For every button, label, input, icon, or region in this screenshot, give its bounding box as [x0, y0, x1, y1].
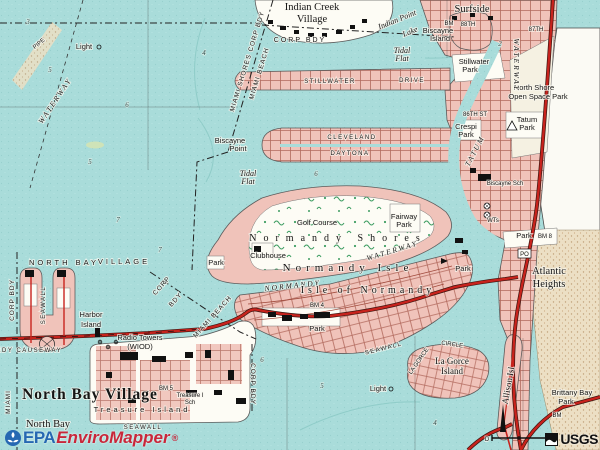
label-causeway: KENNEDY CAUSEWAY: [0, 348, 62, 354]
label-treasure-island-school: Treasure I: [176, 393, 203, 399]
label-north-bay-village-top: NORTH BAY: [29, 258, 99, 267]
label-radio-towers: Radio Towers: [117, 333, 163, 342]
label-miami-bdy: MIAMI: [5, 390, 12, 414]
label-la-gorce-island-2: Island: [441, 366, 463, 376]
label-normandy-park: Park: [309, 324, 325, 333]
label-scale-d: D: [485, 437, 490, 443]
depth-number: 2: [498, 40, 502, 48]
label-treasure-island: Treasure Island: [94, 405, 191, 414]
label-bm-4: BM 4: [310, 303, 325, 309]
label-tatum-waterway-north: WATERWAY: [512, 38, 521, 91]
label-stillwater-park-2: Park: [462, 65, 478, 74]
label-indian-creek-village-2: Village: [297, 14, 328, 25]
label-biscayne-island-2: Island: [430, 34, 450, 43]
label-daytona-road: DAYTONA: [331, 151, 370, 157]
registered-mark: ®: [172, 433, 179, 443]
label-park-north-beach: Park: [516, 231, 532, 240]
label-normandy-isle: Normandy Isle: [283, 262, 414, 274]
enviromapper-map-view[interactable]: LightWATERWAYPIPEMIAMI SHORES CORP BDYMI…: [0, 0, 600, 450]
depth-number: 4: [433, 419, 437, 427]
label-indian-creek-village: Indian Creek: [285, 2, 340, 13]
depth-number: 7: [116, 216, 120, 224]
enviromapper-logo-text: EnviroMapper: [56, 428, 169, 448]
label-corp-bdy-west: CORP BDY: [9, 279, 16, 321]
usgs-logo-icon: [545, 433, 558, 446]
spoil-bank: [86, 142, 104, 149]
epa-logo-icon: [4, 429, 22, 447]
depth-number: 6: [125, 101, 129, 109]
label-biscayne-point-2: Point: [229, 144, 247, 153]
label-harbor-island-2: Island: [81, 320, 101, 329]
label-la-gorce-island: La Gorce: [435, 356, 469, 366]
label-corp-bdy-top: CORP BDY: [274, 37, 326, 44]
label-atlantic-heights-2: Heights: [533, 279, 566, 290]
label-tidal-flat-north-2: Flat: [394, 54, 409, 63]
depth-number: 4: [202, 49, 206, 57]
label-surfside: Surfside: [455, 4, 490, 15]
label-fairway-park-2: Park: [396, 220, 412, 229]
label-86th-st: 86TH ST: [463, 112, 487, 118]
label-north-bay-village-top-2: VILLAGE: [98, 257, 150, 266]
label-golf-course: Golf Course: [297, 218, 337, 227]
label-88th-st: 88TH: [461, 22, 476, 28]
label-brittany-bay-park: Brittany Bay: [552, 388, 593, 397]
label-crespi-park-2: Park: [458, 130, 474, 139]
label-normandy-shores: Normandy Shores: [249, 233, 427, 244]
label-wiod: (WIOD): [127, 342, 153, 351]
label-north-bay-village: North Bay Village: [22, 386, 158, 403]
label-87th-st: 87TH: [529, 27, 544, 33]
depth-number: 6: [314, 170, 318, 178]
depth-number: 6: [260, 356, 264, 364]
label-bm-brittany: BM: [553, 413, 562, 419]
usgs-logo-text: USGS: [560, 431, 598, 447]
label-water-tanks: WTs: [487, 218, 499, 224]
label-bm-surfside: BM: [445, 21, 454, 27]
topo-map-canvas[interactable]: LightWATERWAYPIPEMIAMI SHORES CORP BDYMI…: [0, 0, 600, 450]
label-park-west-lobe: Park: [208, 258, 224, 267]
epa-enviromapper-logo: EPA EnviroMapper ®: [4, 428, 178, 448]
label-corp-bdy-east-nbv: CORP BDY: [249, 363, 256, 405]
label-light-south: Light: [370, 384, 387, 393]
label-bm-8: BM 8: [538, 234, 553, 240]
label-atlantic-heights: Atlantic: [532, 266, 566, 277]
label-stillwater-drive: STILLWATER: [304, 79, 356, 85]
label-seawall-harbor: SEAWALL: [41, 286, 47, 324]
label-isle-of-normandy: Isle of Normandy: [301, 285, 436, 296]
label-bm-5: BM 5: [159, 386, 174, 392]
usgs-logo: USGS: [545, 431, 598, 447]
label-tidal-flat-south-2: Flat: [240, 177, 255, 186]
depth-number: 3: [25, 18, 30, 26]
finger-water-slit: [280, 144, 452, 147]
label-harbor-island: Harbor: [80, 310, 103, 319]
depth-number: 5: [320, 382, 324, 390]
label-cleveland-road: CLEVELAND: [327, 135, 376, 141]
label-biscayne-school: Biscayne Sch: [487, 181, 523, 187]
label-light-northwest: Light: [76, 42, 93, 51]
label-north-shore-open-space-park-2: Open Space Park: [508, 92, 567, 101]
epa-logo-text: EPA: [23, 428, 55, 448]
depth-number: 5: [48, 66, 52, 74]
label-brittany-bay-park-2: Park: [558, 397, 574, 406]
label-stillwater-drive-2: DRIVE: [399, 78, 425, 84]
label-post-office: PO: [520, 252, 529, 258]
depth-number: 5: [88, 158, 92, 166]
depth-number: 7: [158, 246, 162, 254]
label-park-71st: Park: [455, 264, 471, 273]
label-tatum-park-2: Park: [519, 123, 535, 132]
label-clubhouse: Clubhouse: [250, 251, 286, 260]
